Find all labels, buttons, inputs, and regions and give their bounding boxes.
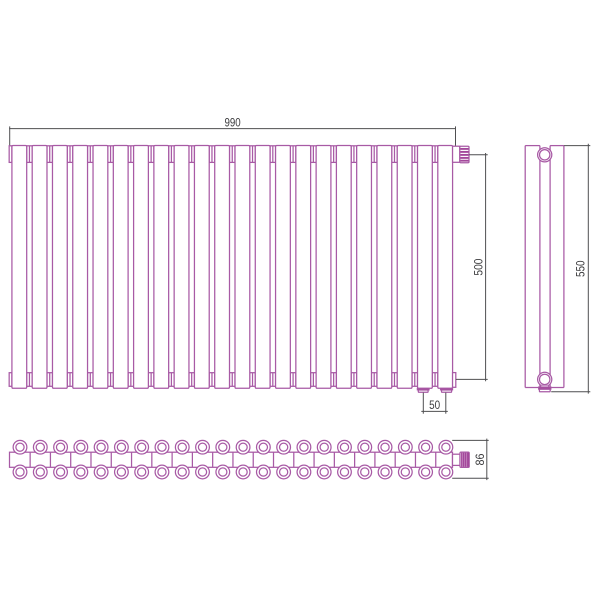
svg-text:550: 550 — [574, 260, 588, 277]
svg-text:50: 50 — [429, 398, 440, 412]
svg-text:86: 86 — [473, 453, 487, 465]
svg-text:990: 990 — [225, 116, 241, 130]
svg-text:500: 500 — [472, 259, 486, 276]
